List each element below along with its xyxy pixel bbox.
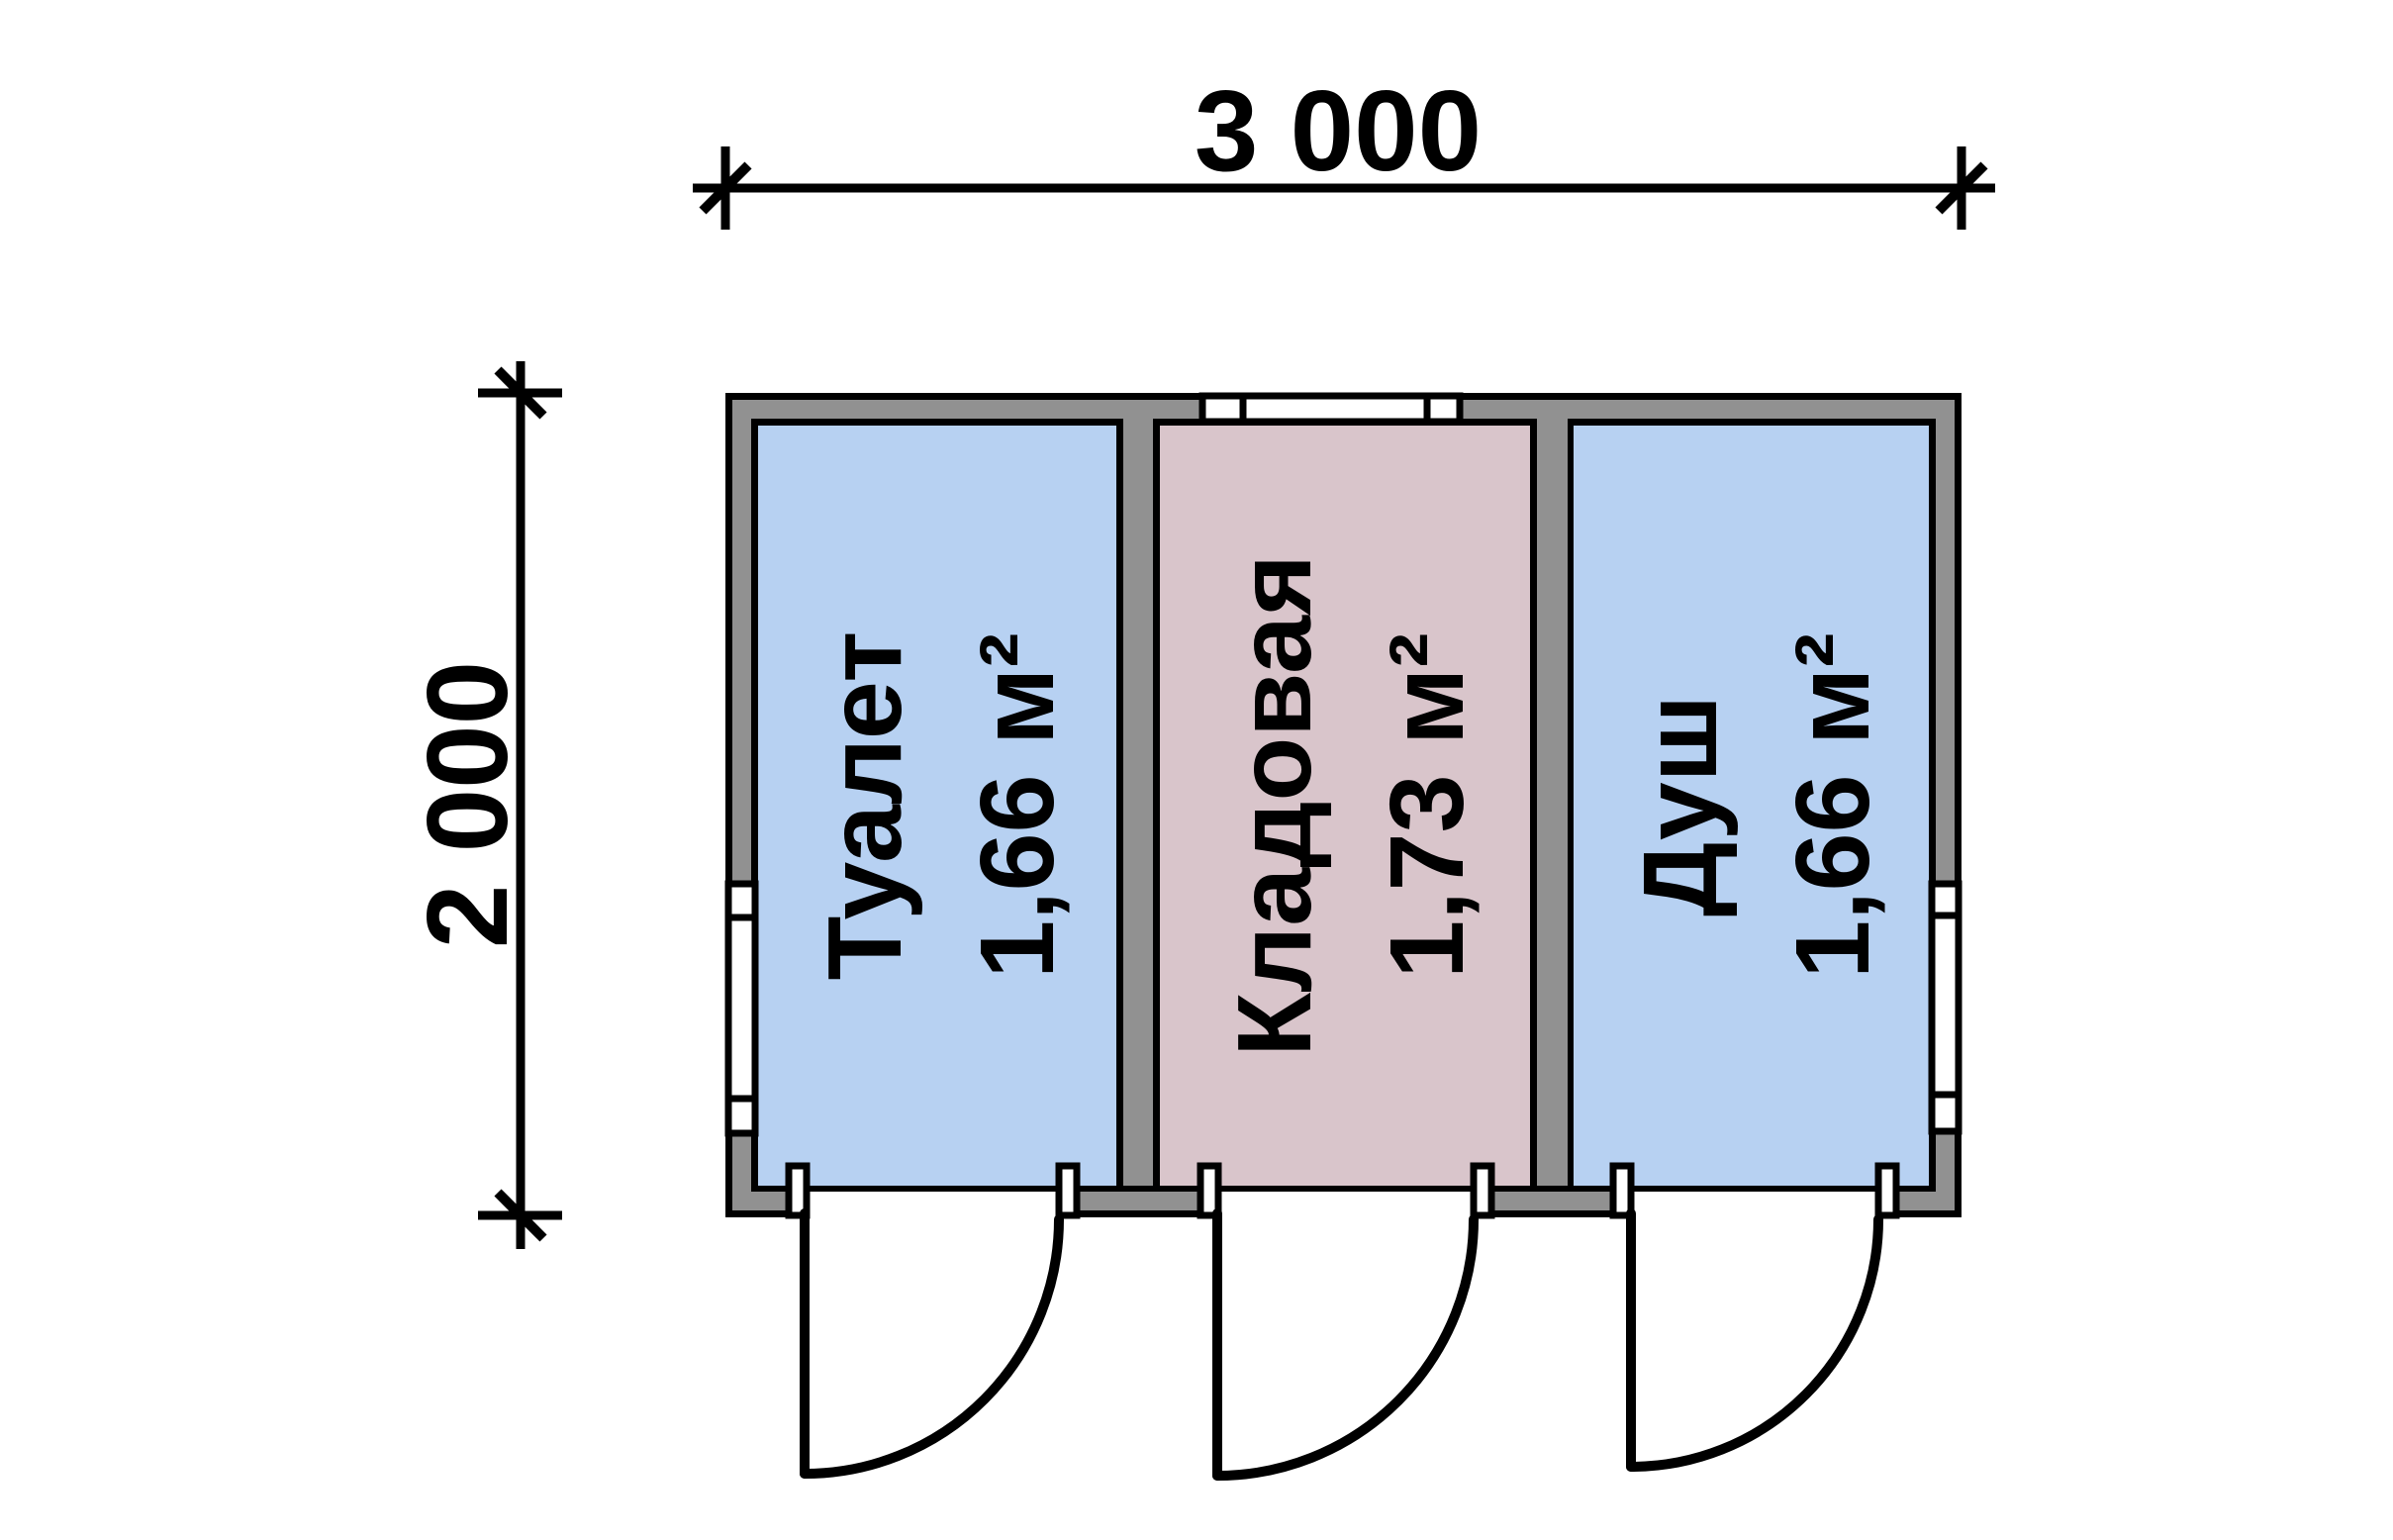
door-storage	[1217, 1213, 1474, 1476]
room-shower-area: 1,66 м²	[1774, 632, 1891, 978]
window-top	[1202, 393, 1460, 425]
door-shower	[1631, 1213, 1878, 1467]
partition-1-core	[1123, 400, 1153, 1186]
door-2-jamb-right	[1474, 1166, 1491, 1215]
room-shower-name: Душ	[1622, 695, 1739, 916]
partition-2-core	[1537, 400, 1568, 1186]
door-2-swing-arc	[1217, 1219, 1474, 1476]
door-opening-2	[1218, 1192, 1474, 1227]
dimension-left: 2 000	[403, 361, 562, 1249]
door-3-jamb-left	[1613, 1166, 1631, 1215]
room-storage-area: 1,73 м²	[1369, 632, 1485, 978]
dimension-height-label: 2 000	[403, 661, 531, 948]
floor-plan-drawing: 3 000 2 000	[0, 0, 2393, 1540]
room-toilet-name: Туалет	[807, 631, 923, 981]
door-1-jamb-right	[1059, 1166, 1077, 1215]
door-3-jamb-right	[1878, 1166, 1896, 1215]
dimension-width-label: 3 000	[1195, 66, 1482, 195]
room-toilet-area: 1,66 м²	[959, 632, 1076, 978]
door-toilet	[805, 1213, 1059, 1474]
window-right	[1929, 884, 1961, 1131]
door-opening-3	[1631, 1192, 1878, 1227]
door-1-swing-arc	[805, 1219, 1059, 1474]
floor-plan-page: 3 000 2 000	[0, 0, 2393, 1540]
door-1-jamb-left	[789, 1166, 807, 1215]
door-3-swing-arc	[1631, 1219, 1878, 1467]
dimension-top: 3 000	[693, 66, 1995, 230]
window-left	[725, 884, 757, 1133]
door-opening-1	[807, 1192, 1059, 1227]
door-2-jamb-left	[1200, 1166, 1218, 1215]
doors	[805, 1213, 1878, 1476]
room-storage-name: Кладовая	[1216, 554, 1333, 1057]
